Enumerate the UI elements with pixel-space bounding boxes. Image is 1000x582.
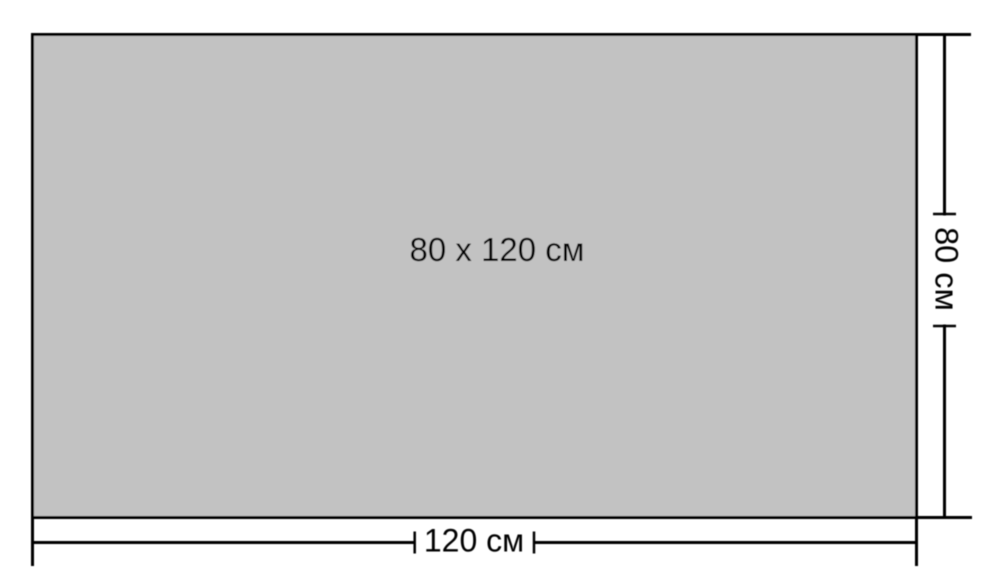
- svg-text:120 см: 120 см: [424, 523, 524, 559]
- svg-text:80 x 120 см: 80 x 120 см: [410, 231, 585, 268]
- svg-text:80 см: 80 см: [929, 227, 965, 311]
